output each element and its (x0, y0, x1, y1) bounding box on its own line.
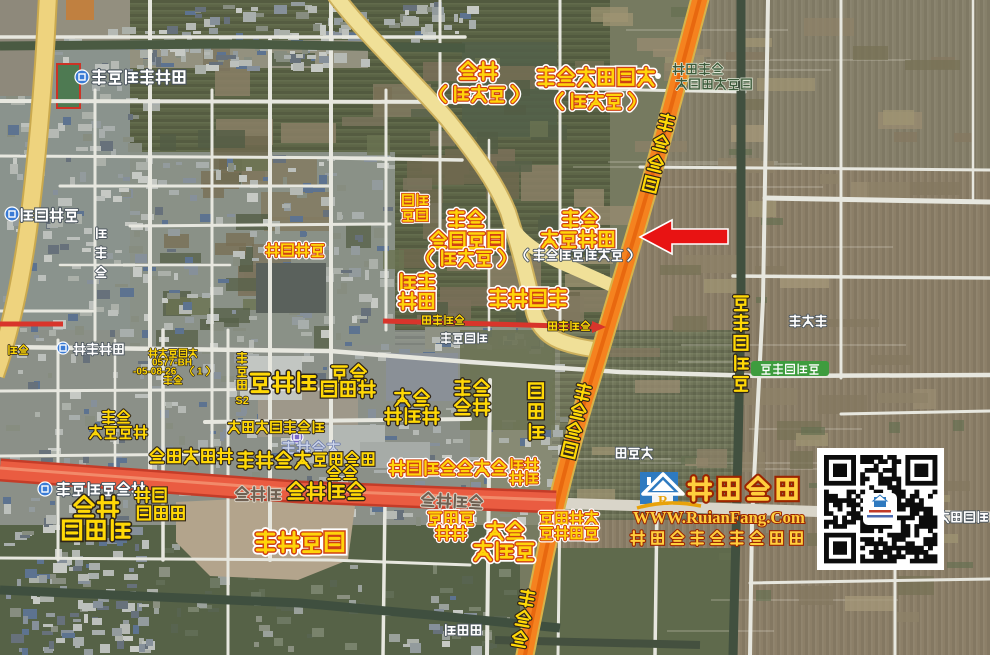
svg-text:WWW.RuianFang.Com: WWW.RuianFang.Com (633, 508, 805, 527)
svg-text:1: 1 (197, 367, 203, 378)
svg-text:S2: S2 (235, 395, 248, 407)
